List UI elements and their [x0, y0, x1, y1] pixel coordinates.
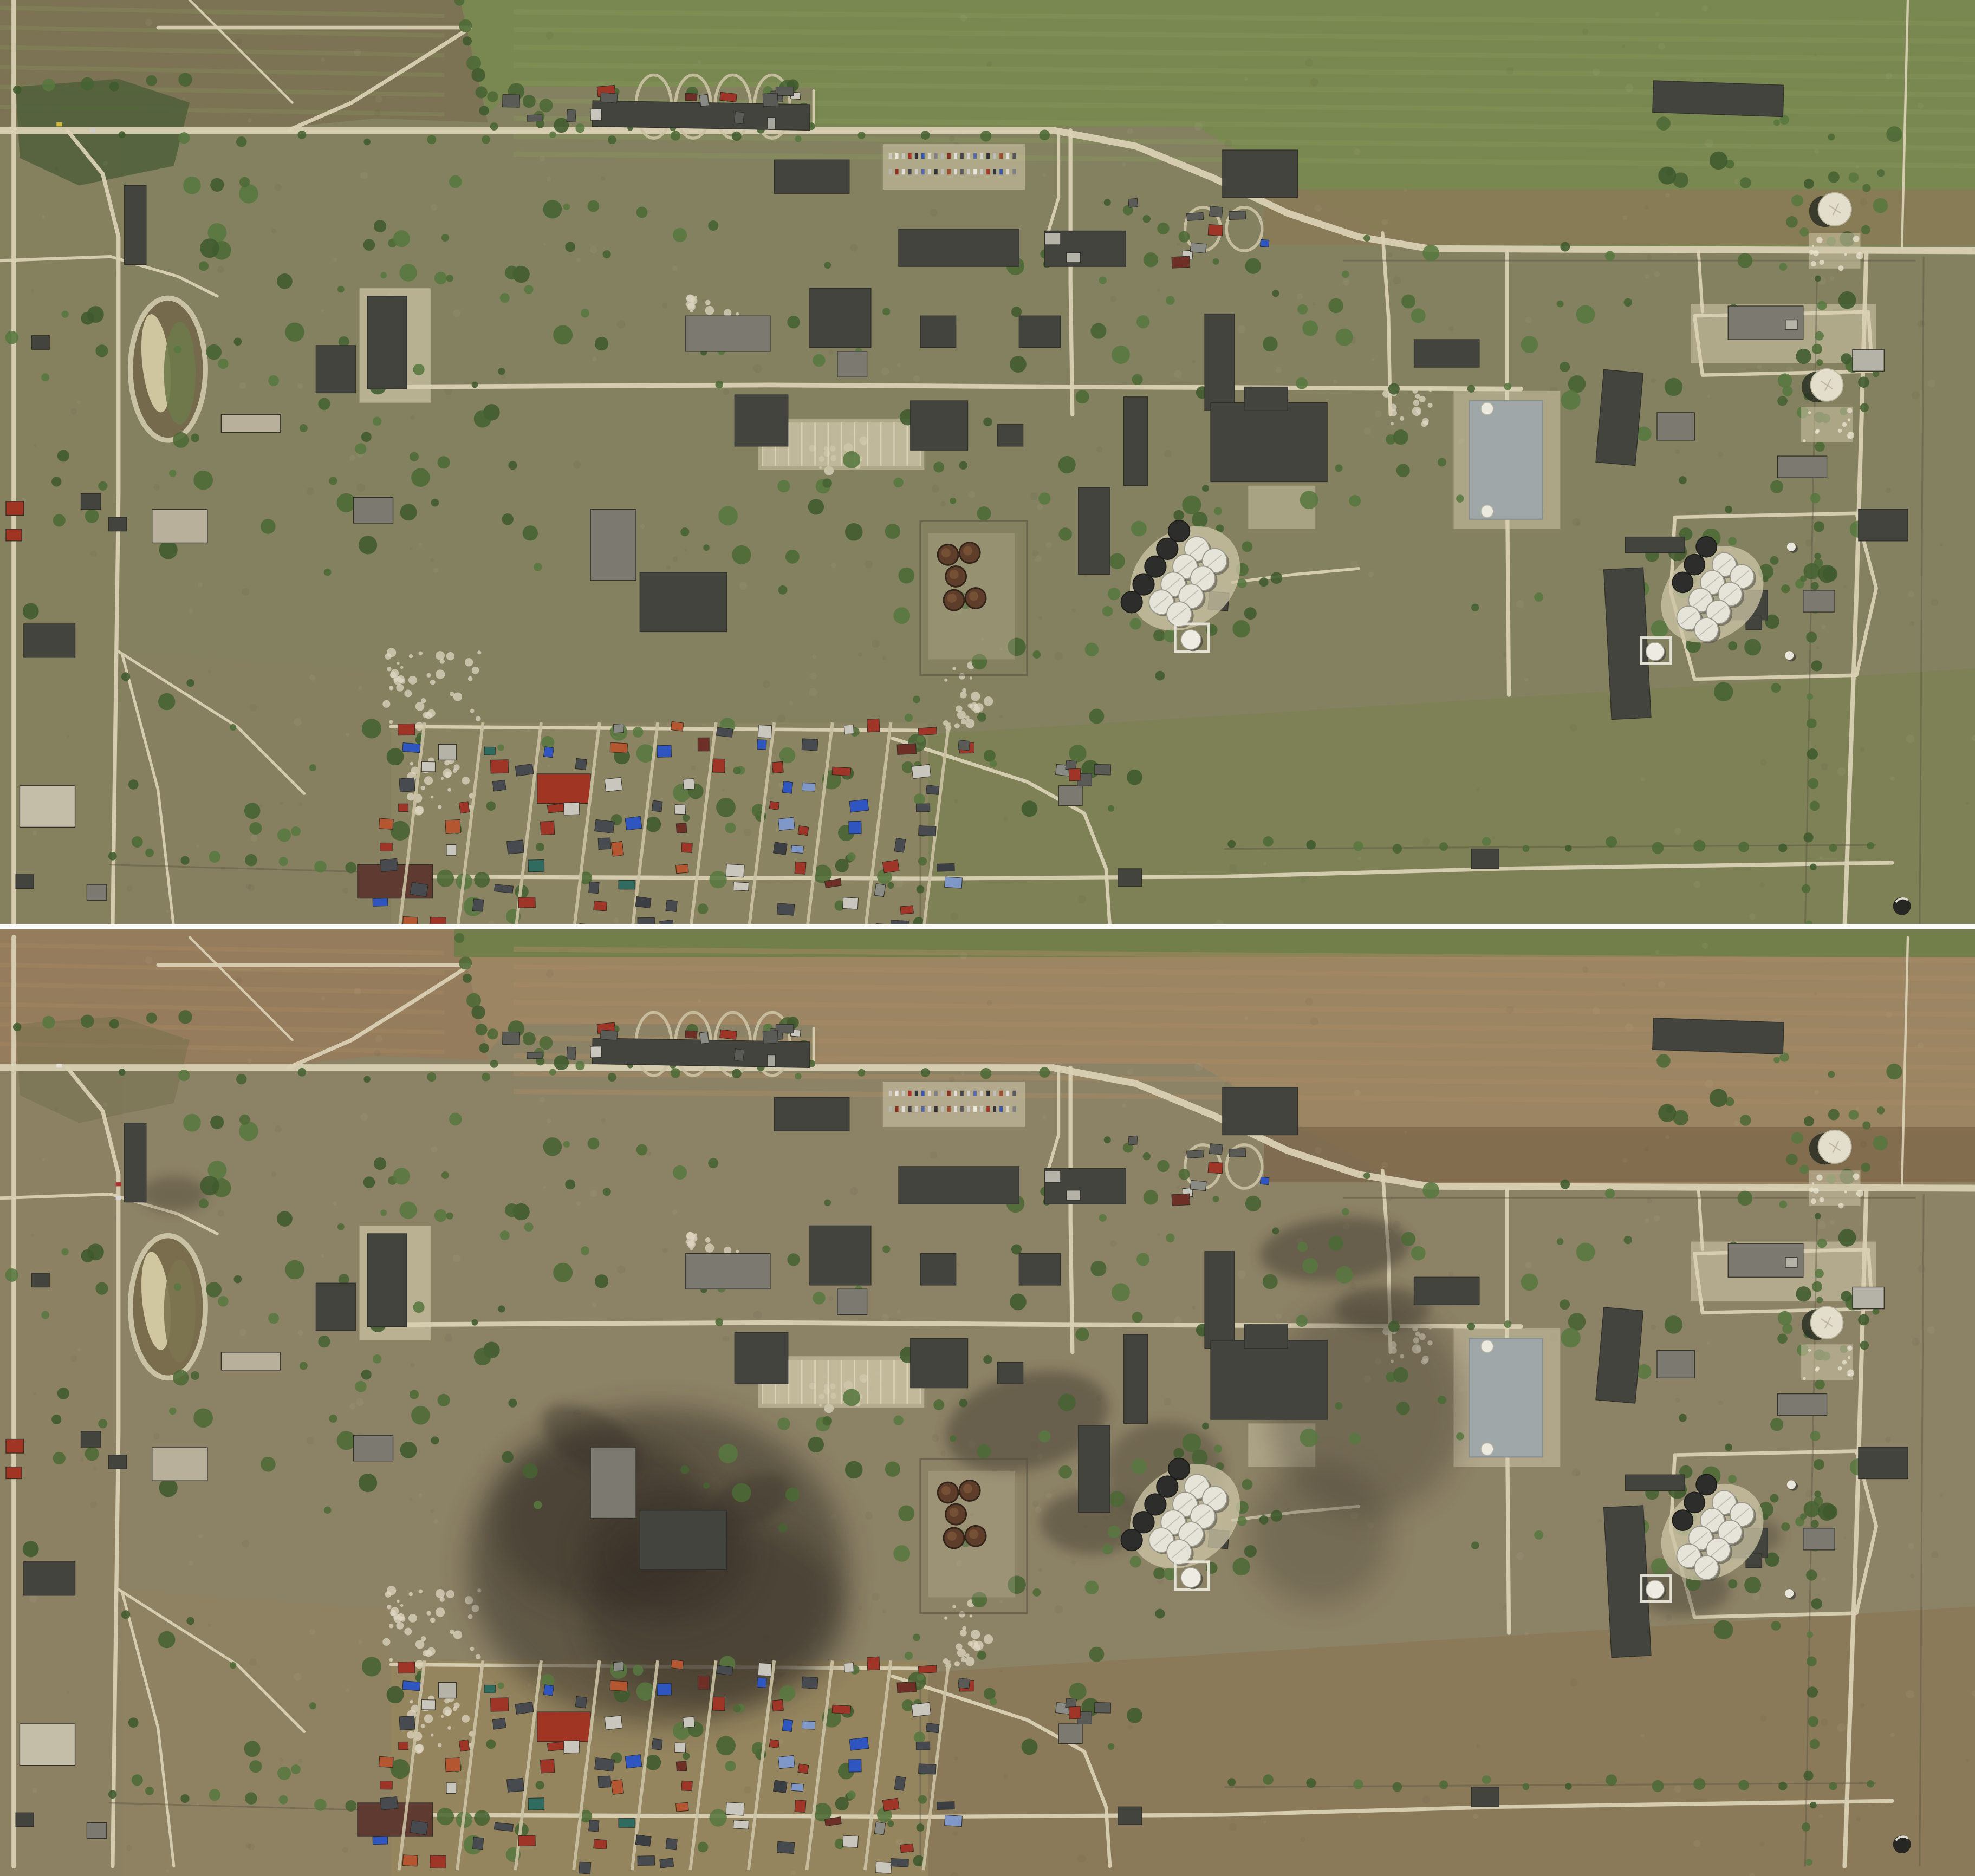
- satellite-render-pb: [0, 0, 1975, 924]
- before-after-satellite-comparison: [0, 0, 1975, 1876]
- after-image-panel: [0, 929, 1975, 1876]
- before-image-panel: [0, 0, 1975, 924]
- satellite-render-pa: [0, 929, 1975, 1876]
- image-divider: [0, 924, 1975, 929]
